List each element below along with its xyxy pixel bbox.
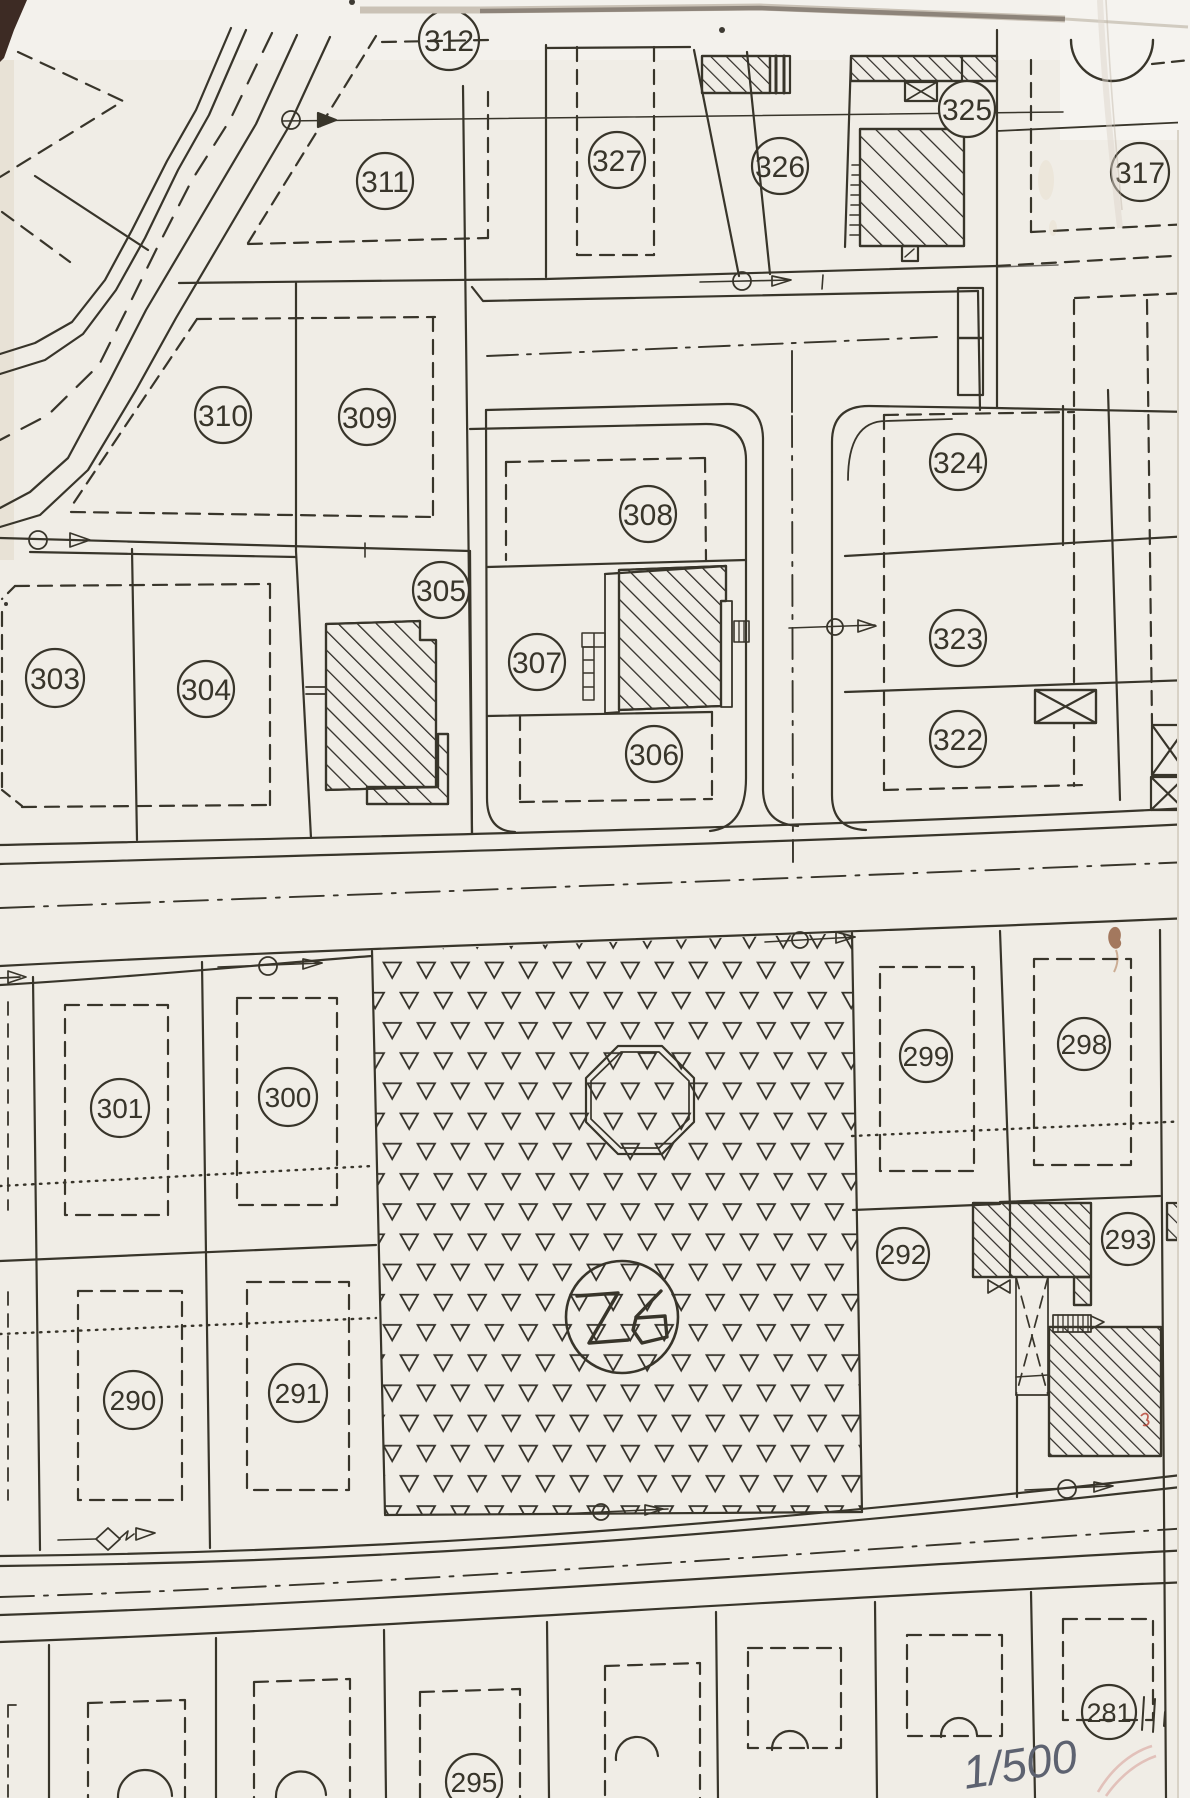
svg-text:292: 292 <box>880 1239 927 1270</box>
svg-text:303: 303 <box>30 663 80 696</box>
svg-text:298: 298 <box>1061 1029 1108 1060</box>
svg-text:299: 299 <box>903 1041 950 1072</box>
svg-text:325: 325 <box>942 94 992 127</box>
svg-text:306: 306 <box>629 739 679 772</box>
svg-text:295: 295 <box>451 1767 498 1798</box>
svg-text:317: 317 <box>1115 157 1165 190</box>
svg-text:327: 327 <box>592 145 642 178</box>
svg-text:300: 300 <box>265 1082 312 1113</box>
svg-text:308: 308 <box>623 499 673 532</box>
svg-text:312: 312 <box>424 25 474 58</box>
svg-text:291: 291 <box>275 1378 322 1409</box>
svg-text:307: 307 <box>512 647 562 680</box>
svg-text:311: 311 <box>361 166 409 199</box>
svg-text:326: 326 <box>755 151 805 184</box>
svg-text:281: 281 <box>1086 1698 1131 1728</box>
svg-text:290: 290 <box>110 1385 157 1416</box>
svg-text:323: 323 <box>933 623 983 656</box>
svg-text:293: 293 <box>1105 1224 1152 1255</box>
svg-text:322: 322 <box>933 724 983 757</box>
svg-text:305: 305 <box>416 575 466 608</box>
svg-text:309: 309 <box>342 402 392 435</box>
svg-text:310: 310 <box>198 400 248 433</box>
svg-text:324: 324 <box>933 447 983 480</box>
svg-text:301: 301 <box>97 1093 144 1124</box>
svg-text:304: 304 <box>181 674 231 707</box>
